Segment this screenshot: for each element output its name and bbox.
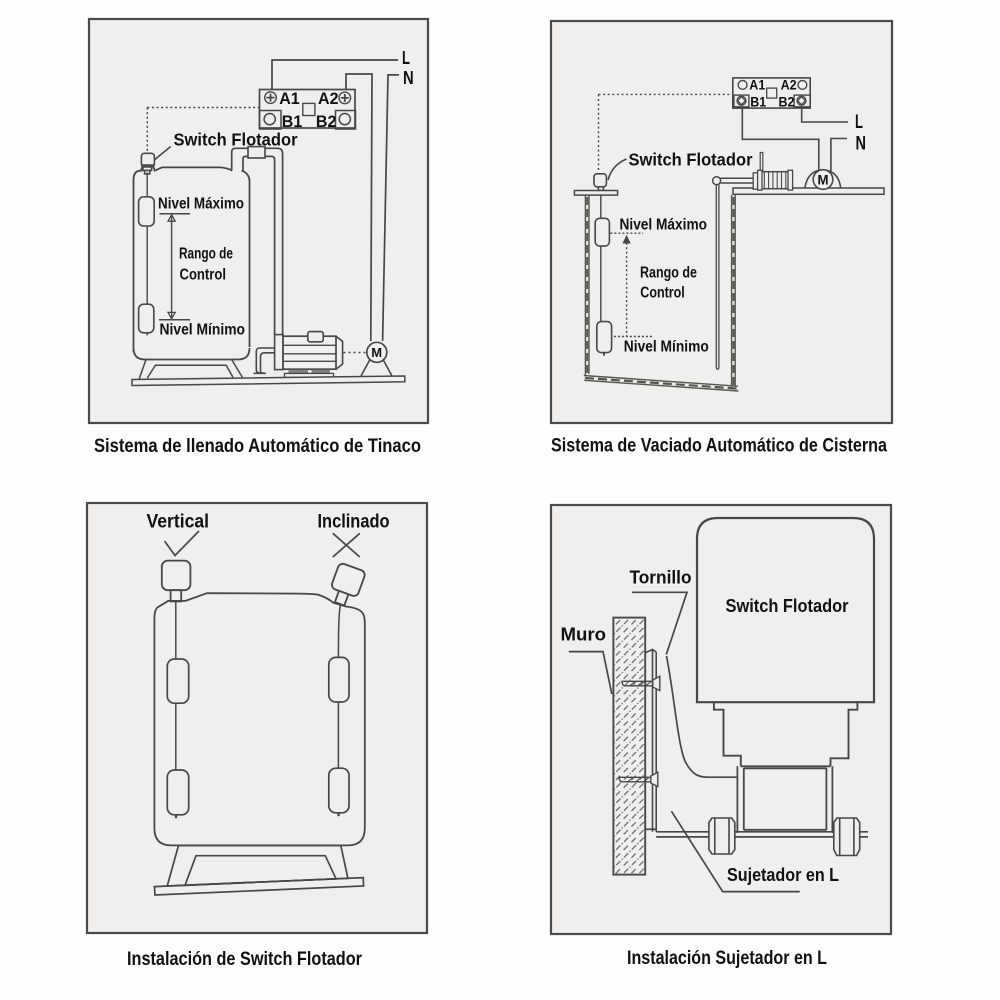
svg-text:Control: Control (180, 267, 227, 284)
svg-text:Nivel Mínimo: Nivel Mínimo (624, 339, 709, 356)
svg-text:M: M (371, 345, 382, 360)
svg-text:Nivel Máximo: Nivel Máximo (158, 196, 244, 213)
svg-text:A2: A2 (781, 77, 797, 93)
svg-text:Sujetador en L: Sujetador en L (727, 865, 839, 885)
svg-text:N: N (403, 68, 414, 88)
svg-text:Rango de: Rango de (179, 246, 233, 263)
svg-text:Control: Control (640, 285, 685, 302)
svg-text:B1: B1 (750, 94, 766, 110)
svg-text:L: L (855, 112, 863, 133)
svg-text:Sistema de Vaciado Automático: Sistema de Vaciado Automático de Cistern… (551, 436, 887, 457)
svg-text:Inclinado: Inclinado (318, 512, 390, 533)
svg-text:Nivel Mínimo: Nivel Mínimo (160, 322, 246, 339)
svg-text:B2: B2 (779, 94, 795, 110)
svg-text:B1: B1 (282, 112, 303, 131)
svg-text:Tornillo: Tornillo (630, 568, 692, 588)
svg-text:Rango de: Rango de (640, 265, 697, 282)
svg-text:Muro: Muro (561, 625, 607, 645)
svg-text:Vertical: Vertical (147, 512, 210, 533)
svg-text:Instalación de Switch Flotador: Instalación de Switch Flotador (127, 949, 363, 970)
svg-text:B2: B2 (316, 112, 337, 131)
svg-text:A2: A2 (318, 89, 339, 108)
svg-text:Switch Flotador: Switch Flotador (726, 596, 849, 616)
svg-text:M: M (818, 172, 829, 187)
svg-text:Switch Flotador: Switch Flotador (174, 130, 298, 150)
svg-text:Sistema de llenado Automático: Sistema de llenado Automático de Tinaco (94, 436, 421, 457)
svg-text:A1: A1 (279, 89, 300, 108)
svg-text:L: L (402, 48, 410, 68)
svg-text:Nivel Máximo: Nivel Máximo (620, 217, 708, 234)
svg-text:N: N (856, 133, 867, 154)
svg-text:Instalación Sujetador en L: Instalación Sujetador en L (627, 948, 827, 969)
svg-text:Switch Flotador: Switch Flotador (629, 150, 753, 170)
svg-text:A1: A1 (749, 77, 765, 93)
